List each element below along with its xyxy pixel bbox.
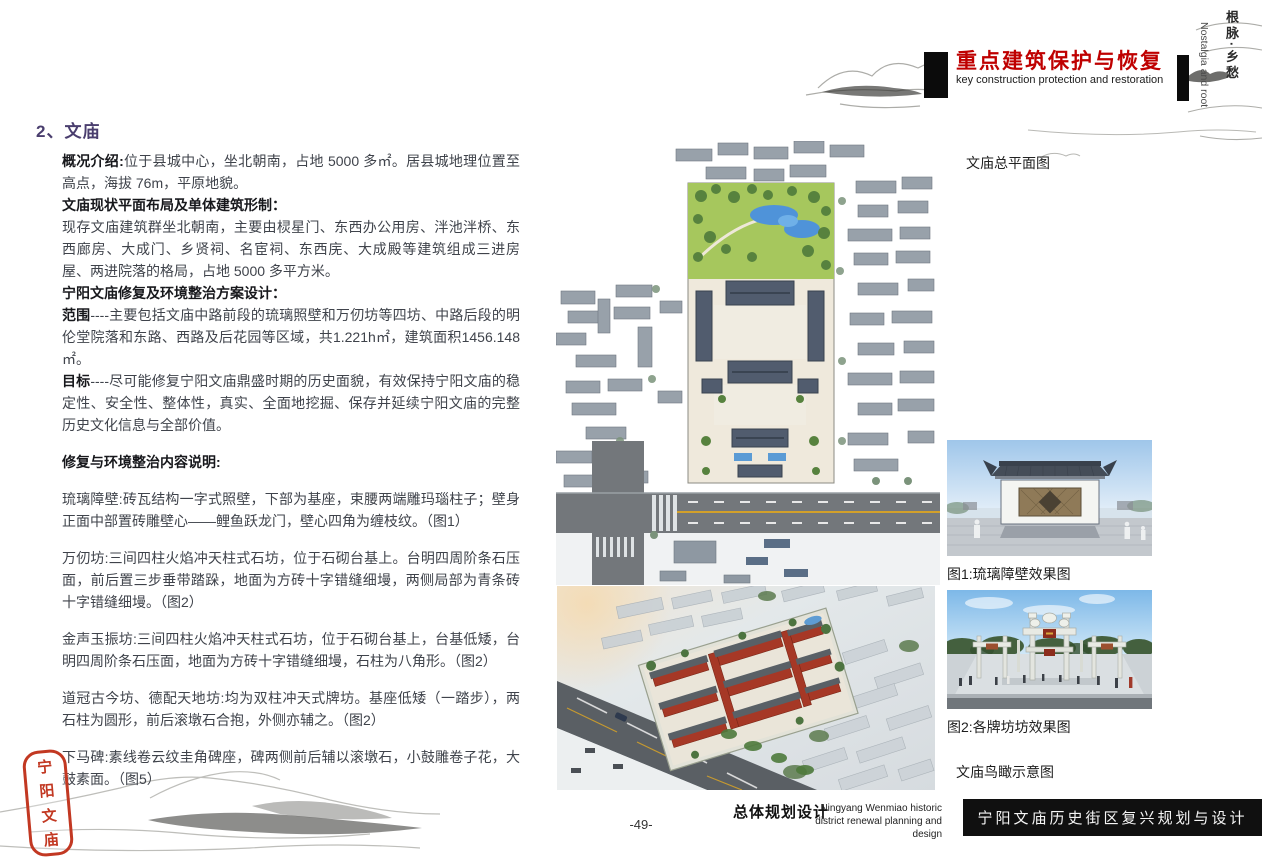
archways-graphic [947, 590, 1152, 709]
body-paragraph: 万仞坊:三间四柱火焰冲天柱式石坊，位于石砌台基上。台明四周阶条石压面，前后置三步… [62, 547, 520, 613]
body-paragraph: 修复与环境整治内容说明: [62, 451, 520, 473]
footer-banner: 宁阳文庙历史街区复兴规划与设计 [963, 799, 1262, 836]
footer-en-line1: Ningyang Wenmiao historic [800, 802, 942, 815]
body-paragraph: 宁阳文庙修复及环境整治方案设计： [62, 282, 520, 304]
footer-title-en: Ningyang Wenmiao historic district renew… [800, 802, 942, 841]
figure1-caption: 图1:琉璃障壁效果图 [947, 564, 1071, 584]
body-paragraph: 概况介绍:位于县城中心，坐北朝南，占地 5000 多㎡。居县城地理位置至高点，海… [62, 150, 520, 194]
seal-character: 庙 [43, 828, 60, 850]
footer-en-line2: district renewal planning and design [800, 815, 942, 841]
body-paragraph: 道冠古今坊、德配天地坊:均为双柱冲天式牌坊。基座低矮（一踏步），两石柱为圆形，前… [62, 687, 520, 731]
page-title: 重点建筑保护与恢复 [956, 45, 1186, 75]
figure2-caption: 图2:各牌坊坊效果图 [947, 717, 1071, 737]
seal-stamp: 宁阳文庙 [21, 748, 74, 857]
aerial-view-label: 文庙鸟瞰示意图 [956, 762, 1054, 782]
aerial-view-image [557, 586, 935, 790]
body-paragraph: 文庙现状平面布局及单体建筑形制： [62, 194, 520, 216]
body-text: 概况介绍:位于县城中心，坐北朝南，占地 5000 多㎡。居县城地理位置至高点，海… [62, 150, 520, 790]
site-plan-label: 文庙总平面图 [966, 153, 1050, 173]
body-paragraph: 琉璃障壁:砖瓦结构一字式照壁，下部为基座，束腰两端雕玛瑙柱子；壁身正面中部置砖雕… [62, 488, 520, 532]
section-heading: 2、文庙 [36, 117, 100, 142]
site-plan-graphic [556, 141, 940, 585]
seal-character: 文 [41, 804, 58, 826]
body-paragraph: 目标----尽可能修复宁阳文庙鼎盛时期的历史面貌，有效保持宁阳文庙的稳定性、安全… [62, 370, 520, 436]
figure2-image [947, 590, 1152, 709]
document-page: 重点建筑保护与恢复 key construction protection an… [0, 0, 1262, 861]
page-subtitle: key construction protection and restorat… [956, 74, 1196, 86]
figure1-image [947, 440, 1152, 556]
header-accent-square [924, 52, 948, 98]
page-number: -49- [606, 817, 676, 832]
corner-motto-en: Nostalgia and root [1198, 22, 1210, 182]
body-paragraph: 下马碑:素线卷云纹圭角碑座，碑两侧前后辅以滚墩石，小鼓雕卷子花，大鼓素面。（图5… [62, 746, 520, 790]
seal-character: 宁 [36, 756, 53, 778]
site-plan-image [556, 141, 940, 585]
body-paragraph: 现存文庙建筑群坐北朝南，主要由棂星门、东西办公用房、泮池泮桥、东西廊房、大成门、… [62, 216, 520, 282]
body-paragraph: 金声玉振坊:三间四柱火焰冲天柱式石坊，位于石砌台基上，台基低矮，台明四周阶条石压… [62, 628, 520, 672]
corner-motto-cn: 根脉·乡愁 [1222, 10, 1241, 130]
aerial-view-graphic [557, 586, 935, 790]
body-paragraph: 范围----主要包括文庙中路前段的琉璃照壁和万仞坊等四坊、中路后段的明伦堂院落和… [62, 304, 520, 370]
header-accent-bar [1177, 55, 1189, 101]
seal-character: 阳 [39, 780, 56, 802]
screen-wall-graphic [947, 440, 1152, 556]
